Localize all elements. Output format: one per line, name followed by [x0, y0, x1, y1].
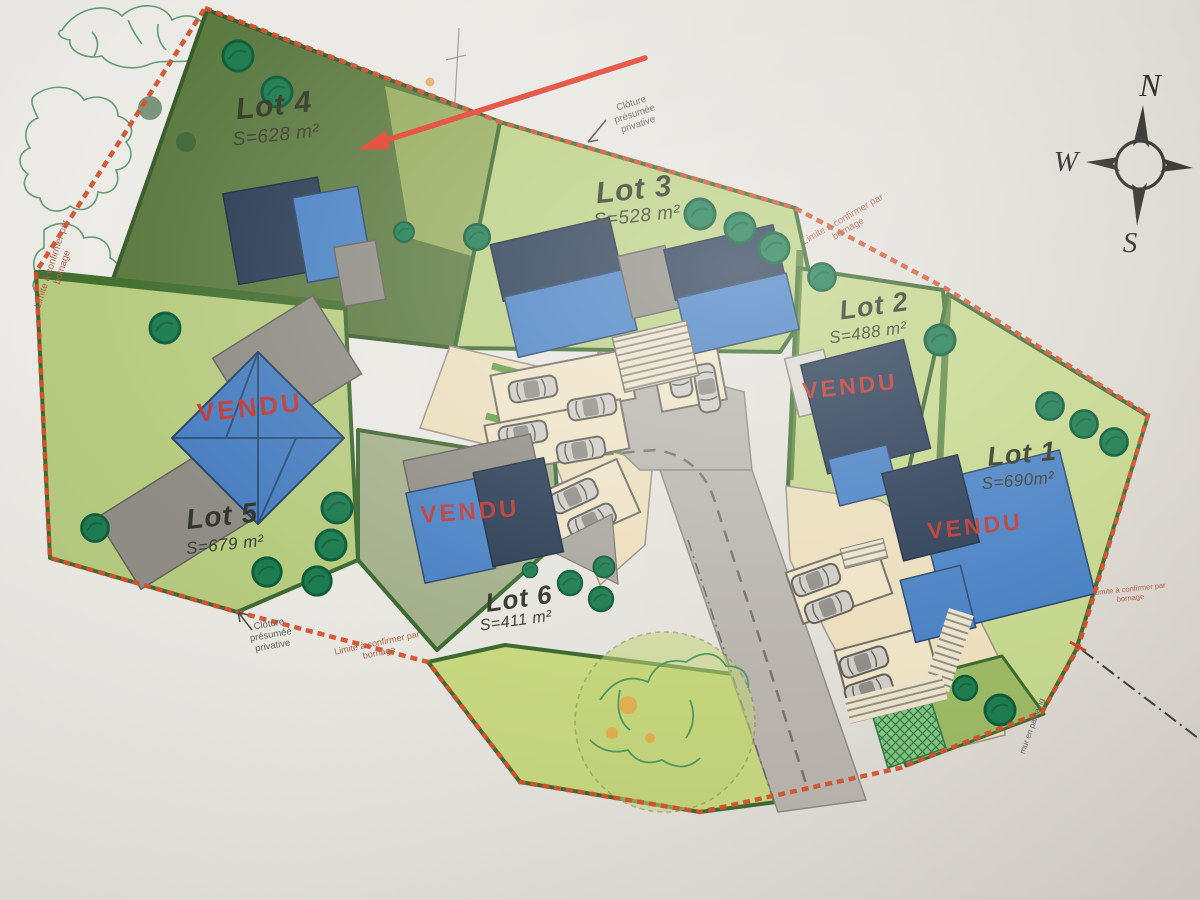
tree-icon [558, 571, 582, 595]
tree-icon [953, 676, 977, 700]
property-dashdot-line [1082, 650, 1198, 738]
tree-icon [82, 515, 109, 542]
site-plan-photo: Lot 4 S=628 m² Lot 3 S=528 m² Lot 2 S=48… [0, 0, 1200, 900]
compass-south-label: S [1123, 228, 1138, 258]
tree-icon [150, 313, 180, 343]
tree-icon [303, 567, 332, 596]
tree-icon [316, 530, 346, 560]
tree-icon [725, 213, 755, 243]
tree-icon [589, 587, 613, 611]
tree-icon [759, 233, 789, 263]
compass-north-label: N [1139, 69, 1160, 103]
compass-rose-icon [1086, 105, 1193, 226]
tree-icon [223, 41, 253, 71]
tree-icon [809, 264, 836, 291]
tree-icon [985, 695, 1015, 725]
tree-icon [1071, 411, 1098, 438]
tree-icon [253, 558, 282, 587]
tree-icon [1101, 429, 1128, 456]
tree-icon [394, 222, 414, 242]
tree-icon [594, 557, 615, 578]
lot-1-label: Lot 1 [986, 437, 1058, 471]
tree-icon [925, 325, 955, 355]
tree-icon [685, 199, 715, 229]
tree-icon [1037, 393, 1064, 420]
tree-icon [464, 224, 490, 250]
tree-icon [322, 493, 352, 523]
tree-icon [523, 563, 538, 578]
compass-west-label: W [1054, 147, 1078, 177]
large-sketch-tree [575, 632, 755, 812]
fence-pointer-top [588, 120, 606, 142]
